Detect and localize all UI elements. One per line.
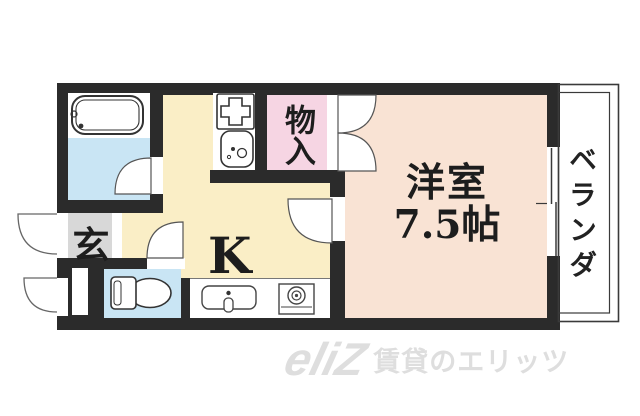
western-room-size: 7.5帖 [350,204,544,246]
watermark-text: 賃貸のエリッツ [373,344,569,382]
kitchen-sink-icon [202,286,256,312]
kitchen-floor-strip [163,170,210,183]
washing-machine-icon [217,94,254,129]
washbasin-icon [221,131,253,167]
sink-faucet [224,298,233,312]
utility-door-opening [57,278,68,316]
washbasin-faucet [231,147,235,151]
toilet-door-opening [147,258,185,269]
utility-door-arc [24,278,57,312]
kitchen-label: K [208,226,251,285]
kitchen-floor-north [163,95,213,170]
stove-icon [279,284,314,314]
closet-door-opening [327,95,338,170]
entrance-label: 玄 [70,215,112,269]
utility-nook [72,268,88,315]
watermark: eliZ 賃貸のエリッツ [286,336,569,382]
entrance-door-opening [57,213,68,258]
western-room-label: 洋室 7.5帖 [350,162,544,246]
watermark-logo: eliZ [280,336,371,382]
exterior-doors [18,214,57,312]
stove-burner-dot [295,294,298,297]
western-room-name: 洋室 [350,162,544,204]
toilet-icon [111,277,171,309]
bathtub-icon [71,96,143,134]
bathtub-drain [79,124,84,129]
closet-label: 物入 [280,98,314,172]
balcony-label: ベランダ [569,130,601,300]
bathroom-door-opening [150,157,163,194]
floorplan-page: 物入 洋室 7.5帖 K 玄 ベランダ eliZ 賃貸のエリッツ [0,0,640,416]
sink-faucet-dot [226,291,230,295]
entrance-step [112,213,122,258]
washbasin-bowl [221,131,253,167]
stove-body [279,284,314,314]
entrance-door-arc [18,214,57,254]
bathtub-outer [72,96,143,134]
